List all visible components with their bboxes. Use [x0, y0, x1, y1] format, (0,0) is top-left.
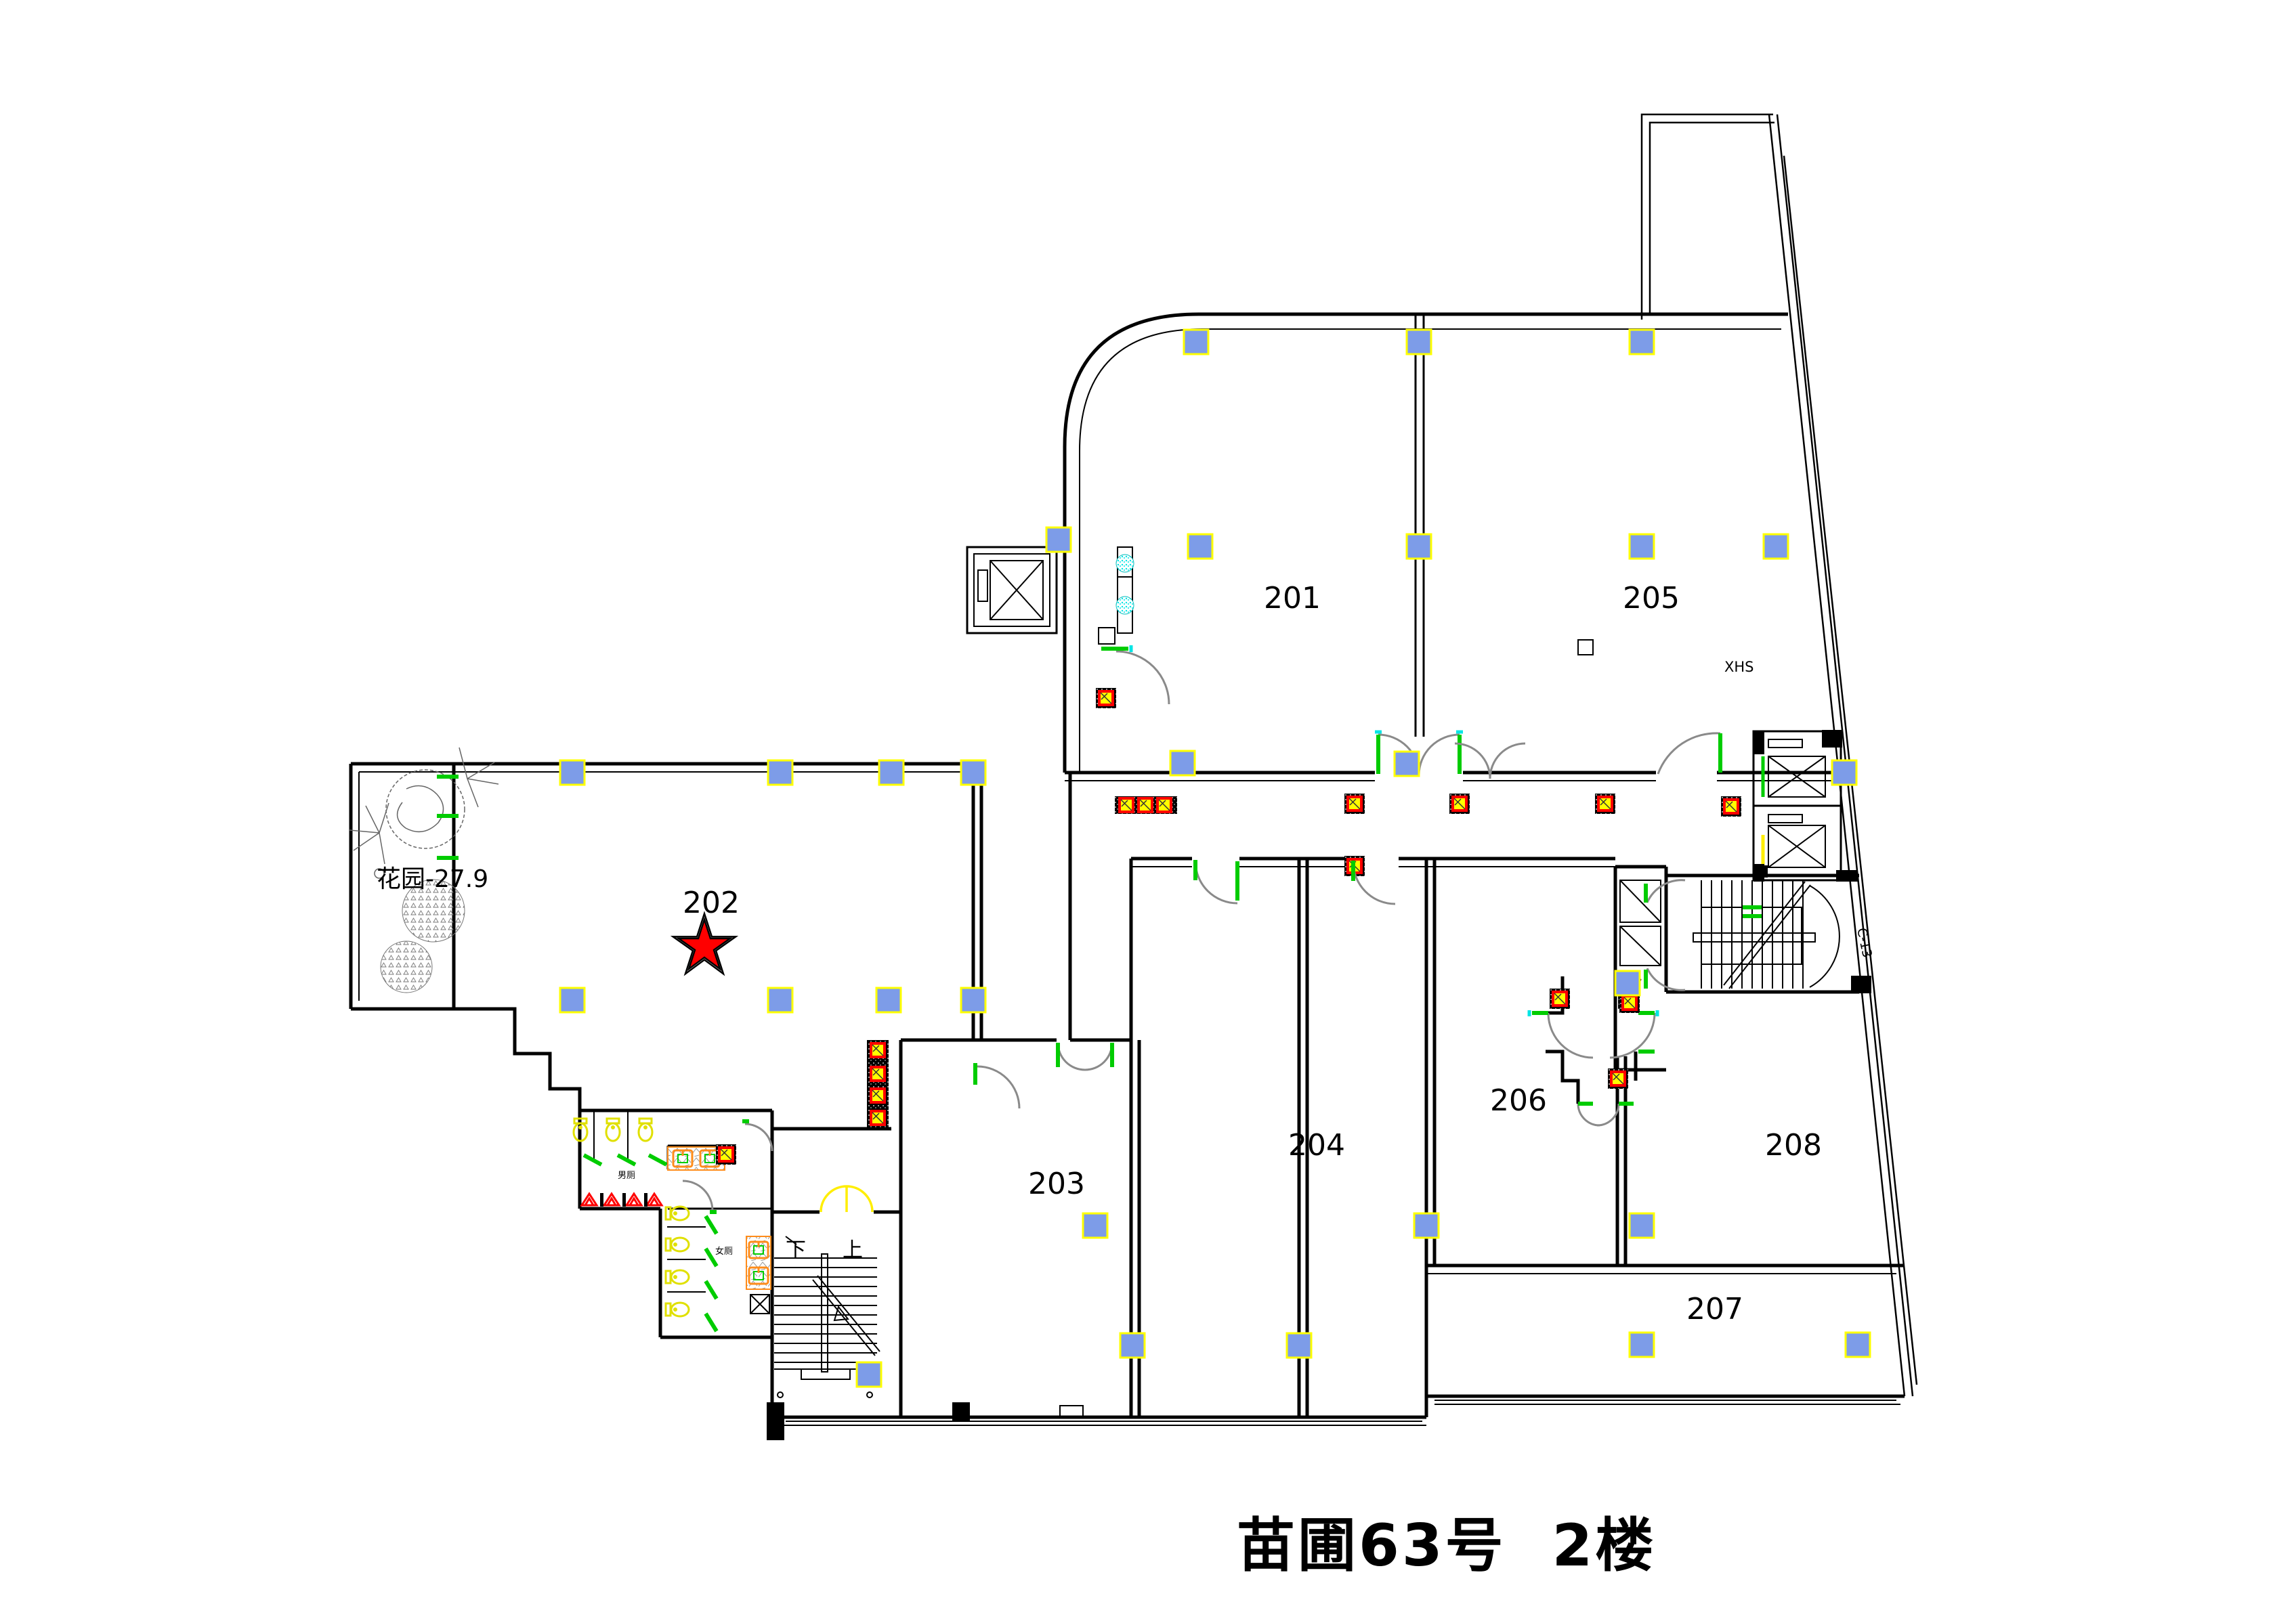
left-stairwell: 下 上 [767, 1186, 970, 1440]
column-with-light [1449, 794, 1470, 814]
toilet [666, 1303, 689, 1316]
light-fixture-icon [871, 1111, 885, 1125]
column-with-light [716, 1144, 736, 1165]
boundary-slant-line-2 [1777, 114, 1913, 1396]
column-marker [768, 760, 792, 785]
right-elevator-2-x [1768, 825, 1825, 867]
corner-column [1822, 730, 1842, 748]
xhs-label: XHS [1724, 659, 1754, 675]
column-marker [876, 988, 901, 1012]
lobby-small-box [1099, 628, 1115, 644]
column-with-light [1608, 1068, 1628, 1089]
room-label-204: 204 [1288, 1128, 1345, 1163]
right-stair-break-line [1724, 882, 1810, 989]
corner-column [1851, 976, 1871, 993]
right-stairwell: C-13 [1646, 865, 1875, 993]
south-exterior-wall [772, 1396, 1905, 1417]
right-elevator-1-x [1768, 756, 1825, 797]
column-marker [1630, 1333, 1654, 1357]
mens-room-label: 男厕 [618, 1171, 635, 1181]
building-walls [351, 314, 1905, 1425]
column-with-light [1550, 989, 1570, 1009]
column-marker [857, 1362, 881, 1387]
elevator-door-panel [978, 570, 987, 601]
room-203-walls [901, 1040, 1131, 1212]
drawing-title: 苗圃63号 2楼 [1237, 1498, 1656, 1582]
toilet [666, 1270, 689, 1284]
column-marker [1188, 534, 1212, 559]
south-wall-window-lines [780, 1400, 1900, 1425]
curved-wall [1810, 886, 1840, 987]
room-label-206: 206 [1490, 1083, 1547, 1118]
column-marker [1630, 534, 1654, 559]
column-marker [768, 988, 792, 1012]
stair-entry-double-door [821, 1186, 872, 1212]
corner-circle-right [867, 1392, 872, 1398]
star-red-icon [679, 920, 730, 969]
room-label-203: 203 [1028, 1167, 1085, 1201]
wall-201-205-divider [1416, 314, 1424, 737]
entry-planter [1099, 547, 1134, 644]
corner-circle-left [778, 1392, 783, 1398]
column-marker [1764, 534, 1788, 559]
door-arc [1195, 861, 1237, 903]
double-door-arc [1058, 1043, 1112, 1070]
right-stair-treads [1693, 880, 1815, 989]
corner-column [1753, 865, 1768, 878]
doors [683, 645, 1720, 1212]
stair-down-label: 下 [786, 1238, 806, 1262]
light-fixture-icon [1139, 798, 1152, 812]
elevator-car-x [990, 561, 1043, 620]
light-fixture-icon [871, 1067, 885, 1081]
restrooms: 男厕 女厕 [574, 1110, 771, 1331]
room-label-202: 202 [683, 886, 740, 920]
right-elevator-1-door [1768, 739, 1802, 748]
light-fixture-icon [1120, 798, 1133, 812]
shrub-2 [381, 941, 432, 993]
corner-column [952, 1402, 970, 1421]
terrace-notch-outline [1642, 114, 1774, 320]
door-arc [1578, 1104, 1619, 1125]
garden-label: 花园-27.9 [377, 865, 488, 893]
column-marker [1407, 534, 1431, 559]
column-marker [961, 760, 985, 785]
wall-206-west [1426, 859, 1434, 1396]
floor-plan-drawing: 花园-27.9 配电 [0, 0, 2296, 1600]
column-marker [1083, 1213, 1107, 1238]
boundary-slant-line-1 [1769, 114, 1905, 1396]
plant-icon [1116, 555, 1134, 572]
room-label-208: 208 [1765, 1128, 1822, 1163]
column-marker [560, 988, 584, 1012]
column-marker [1630, 330, 1654, 354]
column-marker [1615, 971, 1640, 995]
toilet [606, 1119, 620, 1141]
hall-202-stepped-south-wall [454, 1009, 580, 1110]
elevator-top-left [967, 547, 1057, 633]
light-fixture-icon [871, 1043, 885, 1057]
column-marker [1287, 1333, 1311, 1358]
floor-plan-page: 花园-27.9 配电 [0, 0, 2296, 1600]
room-label-207: 207 [1686, 1292, 1743, 1326]
star-marker [673, 913, 736, 974]
decorative-columns [716, 688, 1741, 1165]
column-with-light [1344, 794, 1365, 814]
column-with-light [1595, 794, 1615, 814]
door-arc [1658, 733, 1720, 774]
column-marker [961, 988, 985, 1012]
column-marker [1046, 527, 1071, 552]
column-marker [1407, 330, 1431, 354]
column-marker [1395, 752, 1419, 776]
toilet [639, 1119, 652, 1141]
room-205-small-box [1578, 640, 1593, 655]
column-marker [1414, 1213, 1439, 1238]
right-elevator-2-door [1768, 815, 1802, 823]
column-grid-markers [560, 330, 1870, 1387]
column-marker [1170, 751, 1195, 775]
room-label-201: 201 [1264, 581, 1321, 615]
urinal [604, 1194, 619, 1205]
door-arc [1116, 651, 1169, 704]
column-marker [1120, 1333, 1145, 1358]
south-wall-pier [1060, 1406, 1083, 1417]
column-marker [1832, 760, 1856, 785]
column-marker [1184, 330, 1208, 354]
womens-stall-doors [706, 1216, 717, 1331]
urinal [582, 1194, 597, 1205]
site-boundary [1642, 114, 1917, 1396]
urinal [647, 1194, 662, 1205]
corner-column [1753, 731, 1764, 754]
column-with-light [1721, 796, 1741, 817]
door-arc [977, 1066, 1019, 1108]
column-marker [879, 760, 903, 785]
mens-stall-doors [584, 1155, 666, 1165]
power-room: 配电 [1615, 867, 1666, 1070]
column-marker [1630, 1213, 1654, 1238]
room-label-205: 205 [1623, 581, 1680, 615]
curve-mark-label: C-13 [1854, 926, 1875, 959]
urinal [626, 1194, 641, 1205]
womens-room-label: 女厕 [715, 1246, 733, 1257]
light-fixture-icon [871, 1089, 885, 1102]
power-room-walls [1615, 867, 1666, 1070]
stair-up-label: 上 [843, 1238, 863, 1262]
door-jambs [1195, 860, 1237, 901]
column-marker [1846, 1333, 1870, 1357]
light-fixture-icon [1157, 798, 1171, 812]
elevator-shaft-inner [974, 554, 1050, 626]
door-arc [683, 1181, 713, 1211]
column-with-light [1096, 688, 1116, 708]
column-marker [560, 760, 584, 785]
small-shaft [750, 1295, 769, 1314]
door-arc [745, 1124, 772, 1151]
door-jambs [1532, 1013, 1655, 1052]
plant-icon [1116, 597, 1134, 614]
garden-area: 花园-27.9 [349, 748, 498, 993]
left-stair-treads [774, 1254, 877, 1379]
toilet [666, 1238, 689, 1251]
tree-crown-squiggle [398, 786, 444, 832]
corner-column [767, 1402, 784, 1440]
